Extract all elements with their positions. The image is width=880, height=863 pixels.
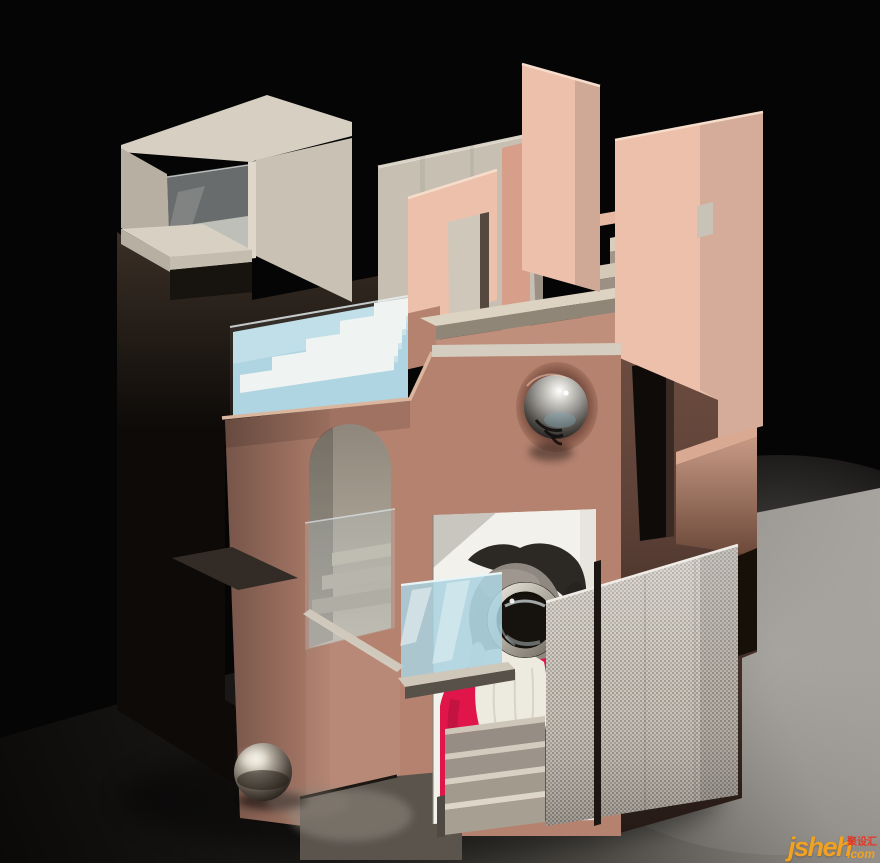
pink-pilaster-shade <box>575 79 600 292</box>
big-pink-panel-shade <box>700 112 763 438</box>
lens-specular-dot <box>510 599 515 604</box>
panel-notch <box>697 202 713 238</box>
scene <box>0 0 880 863</box>
watermark-stack: 聚设汇 .com <box>847 838 877 860</box>
tower-slot-inner-edge <box>666 360 674 537</box>
render-canvas: jsheh 聚设汇 .com <box>0 0 880 863</box>
porthole-specular-dot <box>563 390 568 395</box>
porthole-shadow <box>529 443 573 461</box>
panel-slot-shadow <box>480 212 489 314</box>
panel-mesh-seam-gap <box>594 560 601 826</box>
deck-concrete-band <box>432 343 621 357</box>
porthole-reflection-tint <box>544 412 576 428</box>
sphere-dark-band <box>237 770 289 790</box>
stairs-side-face <box>437 795 445 838</box>
watermark-brand: jsheh <box>788 834 851 861</box>
glass-corner-pilaster <box>248 161 256 259</box>
mesh-right-column-shade <box>700 545 738 801</box>
sphere-highlight <box>241 752 267 766</box>
watermark-tld: .com <box>847 848 875 860</box>
tower-lower-slot <box>738 548 757 656</box>
watermark: jsheh 聚设汇 .com <box>788 834 877 861</box>
